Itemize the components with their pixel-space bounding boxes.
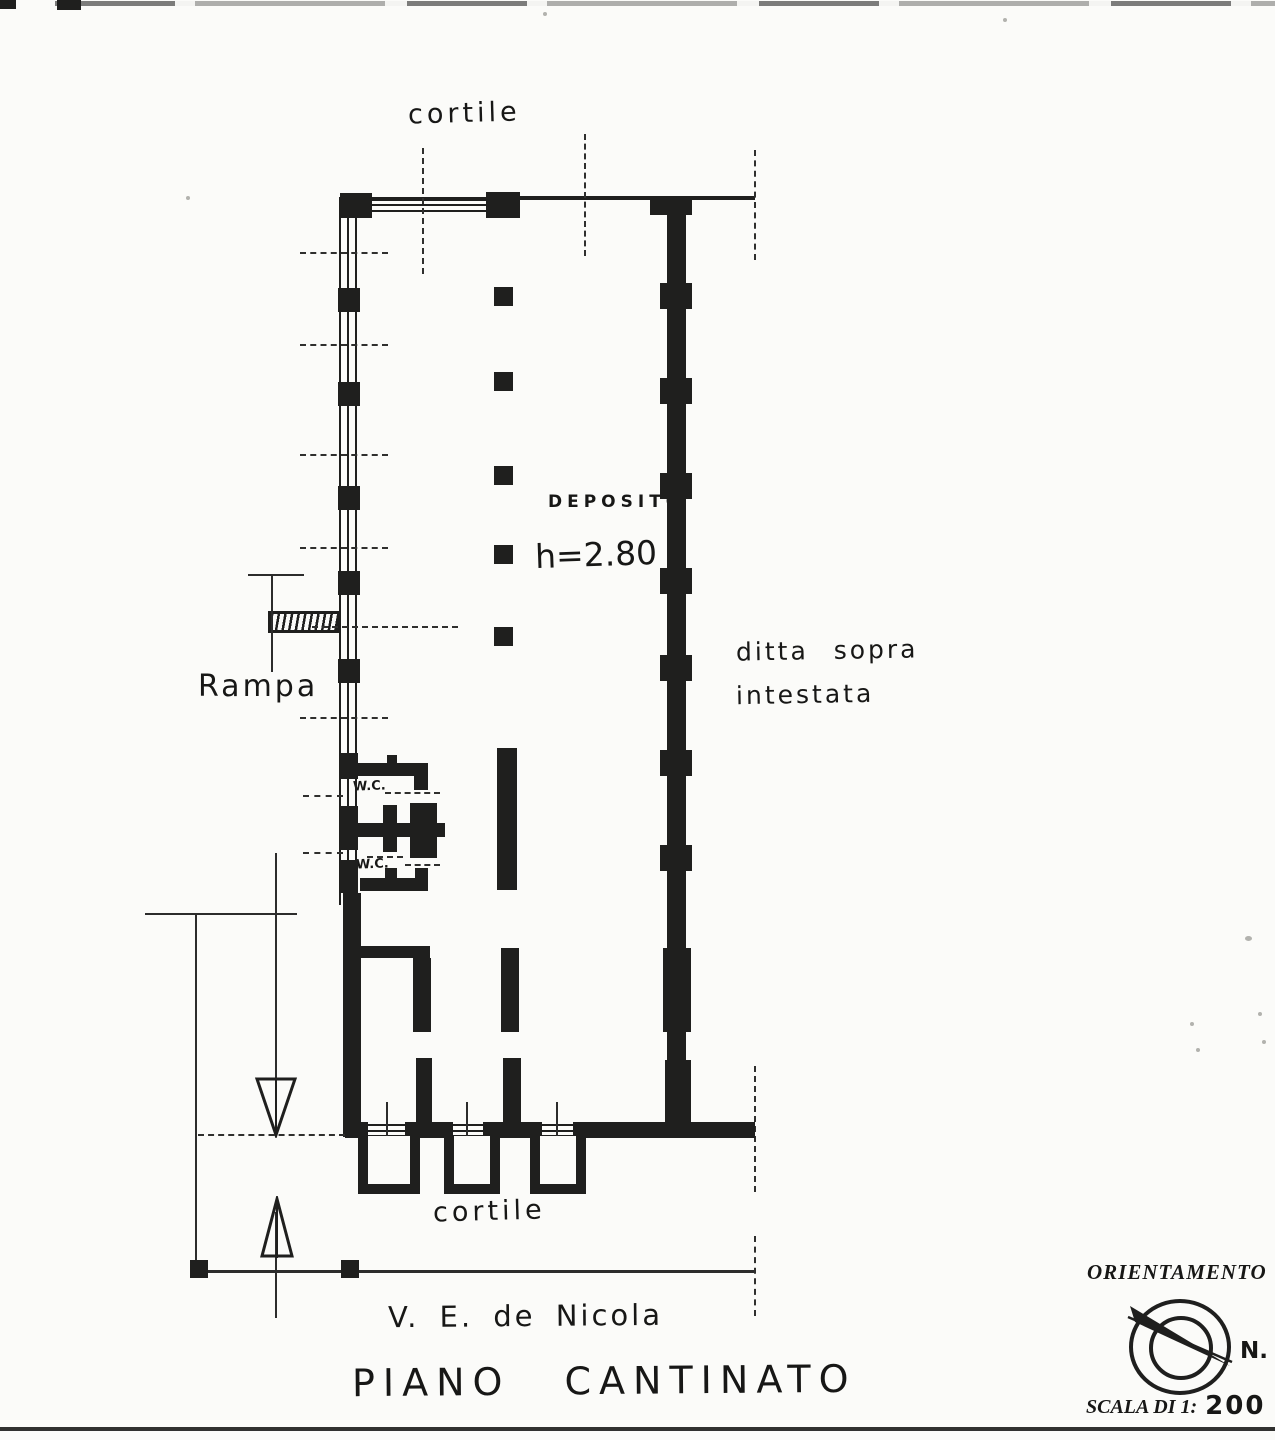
wc-wall-top-stub — [387, 755, 397, 765]
street-line — [196, 1270, 755, 1273]
column-pillar — [494, 287, 513, 306]
label-courtyard-top: cortile — [408, 99, 521, 129]
dim-left-cap — [145, 913, 297, 915]
wall-left-solid — [343, 893, 361, 1137]
wall-right-pillar — [660, 750, 692, 776]
partition-l-vertical — [413, 958, 431, 1032]
dim-left-vertical — [195, 914, 197, 1272]
wc-dash-upper — [385, 792, 440, 794]
orientation-title: ORIENTAMENTO — [1087, 1262, 1267, 1283]
label-ditta-line1: ditta sopra — [736, 636, 919, 664]
plan-title: PIANO CANTINATO — [352, 1360, 857, 1402]
street-post-left — [190, 1260, 208, 1278]
partition-l-horizontal — [356, 946, 430, 958]
wall-right-thick-seg — [663, 948, 691, 1032]
ramp-dash-line — [312, 626, 458, 628]
scan-speckle — [1003, 18, 1007, 22]
scan-top-left-mark — [0, 0, 16, 9]
window-well — [444, 1136, 500, 1194]
scan-top-edge-artifact — [55, 1, 1275, 6]
ramp-down-arrow-icon — [254, 1076, 298, 1138]
dimension-tick-left — [300, 454, 388, 456]
wc-dash-lower-b — [405, 864, 440, 866]
entry-up-arrow-icon — [258, 1196, 296, 1262]
wall-right-pillar — [660, 378, 692, 404]
scan-speckle — [1258, 1012, 1262, 1016]
wall-right-pillar — [660, 283, 692, 309]
street-post-right — [341, 1260, 359, 1278]
label-wc-upper: W.C. — [353, 779, 386, 793]
wc-wall-bottom-stub — [385, 868, 397, 878]
ramp-hatch-bar — [268, 611, 340, 633]
scan-top-left-mark2 — [57, 0, 81, 10]
label-wc-lower: W.C. — [356, 857, 389, 871]
column-pillar — [494, 545, 513, 564]
wc-wall-mid-block — [410, 803, 437, 858]
scan-speckle — [543, 12, 547, 16]
floor-plan-scan: cortile DEPOSITO h=2.80 ditta sopra inte… — [0, 0, 1275, 1440]
wall-center-bar2 — [501, 948, 519, 1032]
wall-left-pillar — [338, 382, 360, 406]
label-courtyard-bottom: cortile — [433, 1197, 546, 1227]
wc-wall-bottom — [360, 878, 428, 891]
wall-left-pillar — [338, 659, 360, 683]
scan-speckle — [1262, 1040, 1266, 1044]
wall-center-bar — [497, 748, 517, 890]
wc-wall-bottom-tab — [415, 868, 428, 878]
wall-inner-stub-left — [416, 1058, 432, 1122]
dimension-tick-left-short — [303, 795, 343, 797]
dimension-tick-left — [300, 717, 388, 719]
wall-top-thin — [520, 196, 755, 200]
label-height: h=2.80 — [534, 536, 657, 573]
dimension-tick-left-short — [303, 852, 343, 854]
ramp-arrow-shaft — [275, 853, 277, 1081]
dimension-line-vertical — [754, 150, 756, 260]
column-pillar — [494, 372, 513, 391]
wall-right-pillar — [660, 473, 692, 499]
label-ramp: Rampa — [198, 672, 318, 702]
pillar-top — [486, 192, 520, 218]
scan-speckle — [1196, 1048, 1200, 1052]
wall-left-pillar — [338, 571, 360, 595]
wall-right-foot — [665, 1060, 691, 1124]
ramp-guide-cap — [248, 574, 304, 576]
wall-bottom-segment — [573, 1122, 755, 1138]
scan-speckle — [186, 196, 190, 200]
ramp-guide-line — [271, 575, 273, 672]
wall-center-stub — [503, 1058, 521, 1122]
label-street-name: V. E. de Nicola — [388, 1301, 663, 1332]
column-pillar — [494, 627, 513, 646]
wc-wall-mid-v — [383, 805, 397, 852]
wall-right-pillar — [660, 845, 692, 871]
courtyard-dash-line — [198, 1134, 345, 1136]
dimension-line-vertical — [584, 134, 586, 256]
sheet-bottom-line — [0, 1427, 1275, 1431]
dimension-tick-left — [300, 344, 388, 346]
scan-speckle — [1190, 1022, 1194, 1026]
wall-right-pillar — [660, 568, 692, 594]
wc-wall-top-tab — [414, 776, 428, 790]
window-well — [358, 1136, 420, 1194]
scan-speckle — [1245, 936, 1252, 941]
north-label: N. — [1240, 1340, 1268, 1363]
scale-value: 200 — [1205, 1393, 1265, 1419]
dimension-line-vertical — [754, 1236, 756, 1316]
wall-left-pillar — [338, 288, 360, 312]
wall-right-cap — [650, 199, 692, 215]
label-ditta-line2: intestata — [736, 681, 875, 708]
dimension-line-vertical — [422, 148, 424, 274]
wall-right-pillar — [660, 655, 692, 681]
scale-label: SCALA DI 1: — [1086, 1396, 1197, 1419]
window-well — [530, 1136, 586, 1194]
wall-left-pillar — [338, 486, 360, 510]
wall-left-block-c — [340, 860, 358, 893]
window-band-top — [370, 197, 488, 212]
column-pillar — [494, 466, 513, 485]
dimension-tick-left — [300, 252, 388, 254]
wc-dash-lower-a — [367, 856, 403, 858]
dimension-tick-left — [300, 547, 388, 549]
